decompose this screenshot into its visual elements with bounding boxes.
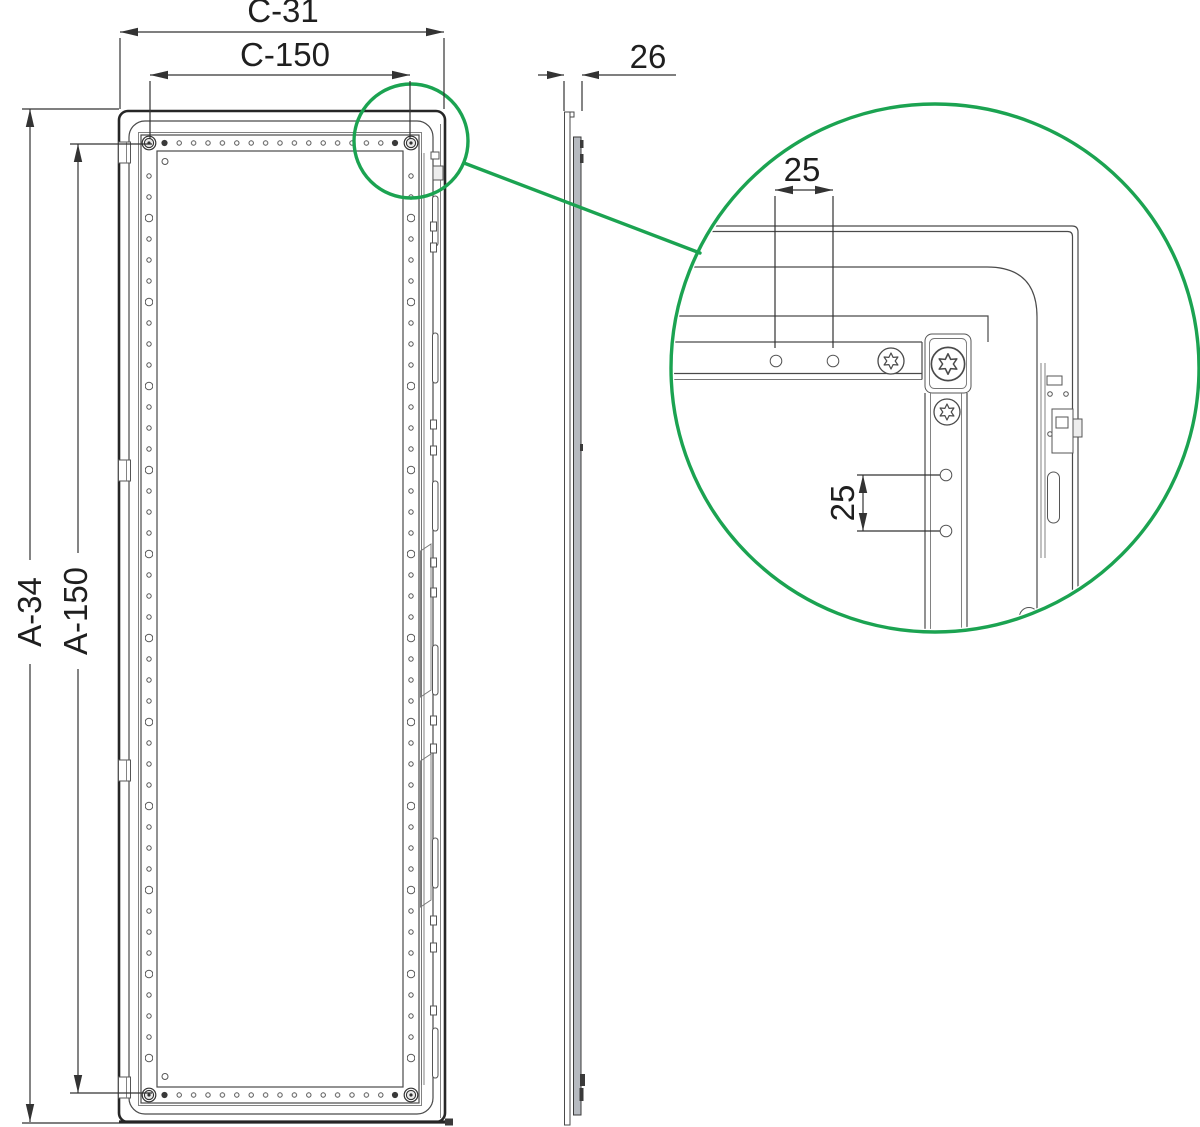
dimension-A150: A-150 xyxy=(57,144,152,1093)
extra-hole-bottom-left xyxy=(162,1074,168,1080)
fixing-screw-top-left xyxy=(161,140,167,146)
lock-mechanism xyxy=(421,152,444,1085)
hinge-1 xyxy=(119,142,131,163)
rail-frame-outer-shadow xyxy=(139,133,422,1106)
detail-horizontal-rail xyxy=(660,342,922,380)
dimension-26: 26 xyxy=(538,38,676,111)
detail-latch-tab xyxy=(1052,409,1073,453)
door-bottom-corner-cap xyxy=(445,1119,453,1126)
bottom-rail-holes xyxy=(172,1091,388,1099)
rail-frame-inner xyxy=(157,151,403,1087)
side-view xyxy=(565,112,586,1125)
extra-hole-top-left xyxy=(162,159,168,165)
corner-screw-bottom-right xyxy=(404,1088,418,1102)
left-rail-holes xyxy=(145,166,153,1070)
detail-torx-screw-rail xyxy=(878,348,904,374)
corner-screw-top-left xyxy=(142,136,156,150)
lock-rod-upper xyxy=(421,544,432,697)
front-view xyxy=(119,111,454,1126)
detail-leader-line xyxy=(464,163,700,253)
dim-label-inner-height: A-150 xyxy=(57,567,94,655)
right-rail-holes xyxy=(407,166,415,1070)
door-panel-profile xyxy=(565,112,571,1125)
detail-dim-horizontal-25: 25 xyxy=(775,151,833,348)
detail-view: 25 25 xyxy=(660,151,1082,634)
detail-torx-screw-vertical xyxy=(934,399,960,425)
detail-corner-block xyxy=(925,334,971,393)
corner-screw-bottom-left xyxy=(142,1088,156,1102)
fixing-screw-bottom-right xyxy=(392,1092,398,1098)
detail-hole-2 xyxy=(827,355,839,367)
hinge-4 xyxy=(119,1077,131,1098)
engineering-drawing-page: 25 25 C-31 C-150 xyxy=(0,0,1200,1127)
detail-dim-vertical-25: 25 xyxy=(824,475,940,531)
rail-frame-outer xyxy=(141,135,419,1103)
dim-label-inner-width: C-150 xyxy=(240,36,330,73)
door-panel-step xyxy=(570,112,574,117)
latch-tab-top xyxy=(433,166,443,180)
detail-hole-1 xyxy=(770,355,782,367)
door-face-edge xyxy=(129,121,433,1114)
door-outer-edge xyxy=(119,111,445,1122)
latch-slot-top xyxy=(431,152,439,159)
lock-rod-lower xyxy=(421,754,432,907)
technical-drawing: 25 25 C-31 C-150 xyxy=(0,0,1200,1127)
detail-face-corner xyxy=(690,267,1037,631)
dim-label-thickness: 26 xyxy=(630,38,667,75)
corner-screw-top-right xyxy=(404,136,418,150)
detail-vertical-rail xyxy=(925,393,967,634)
detail-hole-4 xyxy=(940,525,952,537)
dim-label-outer-height: A-34 xyxy=(11,577,48,647)
perforated-rail-frame xyxy=(139,133,422,1106)
dim-label-pitch-h: 25 xyxy=(784,151,821,188)
dim-label-pitch-v: 25 xyxy=(824,485,861,522)
frame-profile-bar xyxy=(574,137,582,1115)
dim-label-outer-width: C-31 xyxy=(247,0,319,29)
corner-screws xyxy=(142,136,418,1102)
hinge-2 xyxy=(119,460,131,481)
detail-door-edges xyxy=(675,226,1078,632)
detail-callout xyxy=(354,84,700,253)
detail-torx-screw-corner xyxy=(931,347,964,380)
detail-slot xyxy=(1048,472,1060,523)
fixing-screw-top-right xyxy=(392,140,398,146)
detail-hole-3 xyxy=(940,469,952,481)
dimension-C150: C-150 xyxy=(150,36,410,139)
hinge-3 xyxy=(119,760,131,781)
fixing-screw-bottom-left xyxy=(161,1092,167,1098)
